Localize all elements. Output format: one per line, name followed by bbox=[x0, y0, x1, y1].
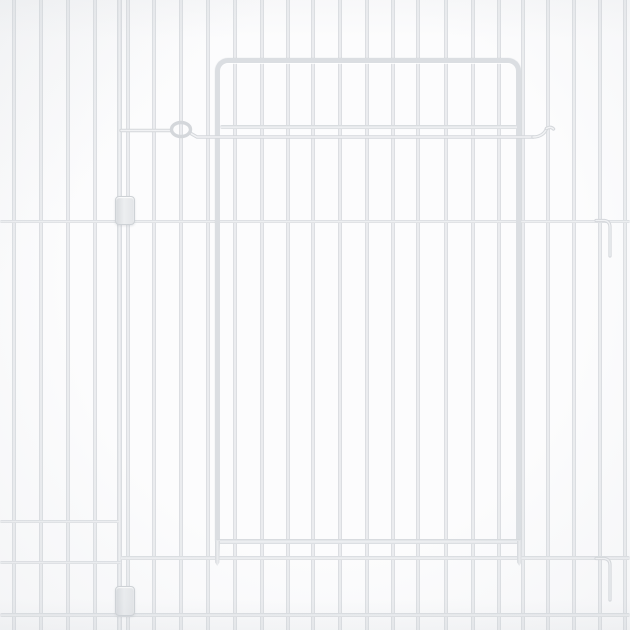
panel-connector-clip bbox=[115, 196, 136, 225]
panel-attachment-hook-highlight bbox=[596, 559, 610, 601]
panel-attachment-hook-highlight bbox=[596, 221, 610, 257]
panel-attachment-hook bbox=[596, 221, 610, 257]
panel-attachment-hook bbox=[596, 559, 610, 601]
cage-panel-product-photo bbox=[0, 0, 630, 630]
panel-connector-clip bbox=[115, 586, 136, 616]
latch-and-hooks-overlay bbox=[0, 0, 630, 630]
door-latch-bar-highlight bbox=[190, 133, 533, 137]
latch-finger-loop bbox=[172, 123, 191, 137]
